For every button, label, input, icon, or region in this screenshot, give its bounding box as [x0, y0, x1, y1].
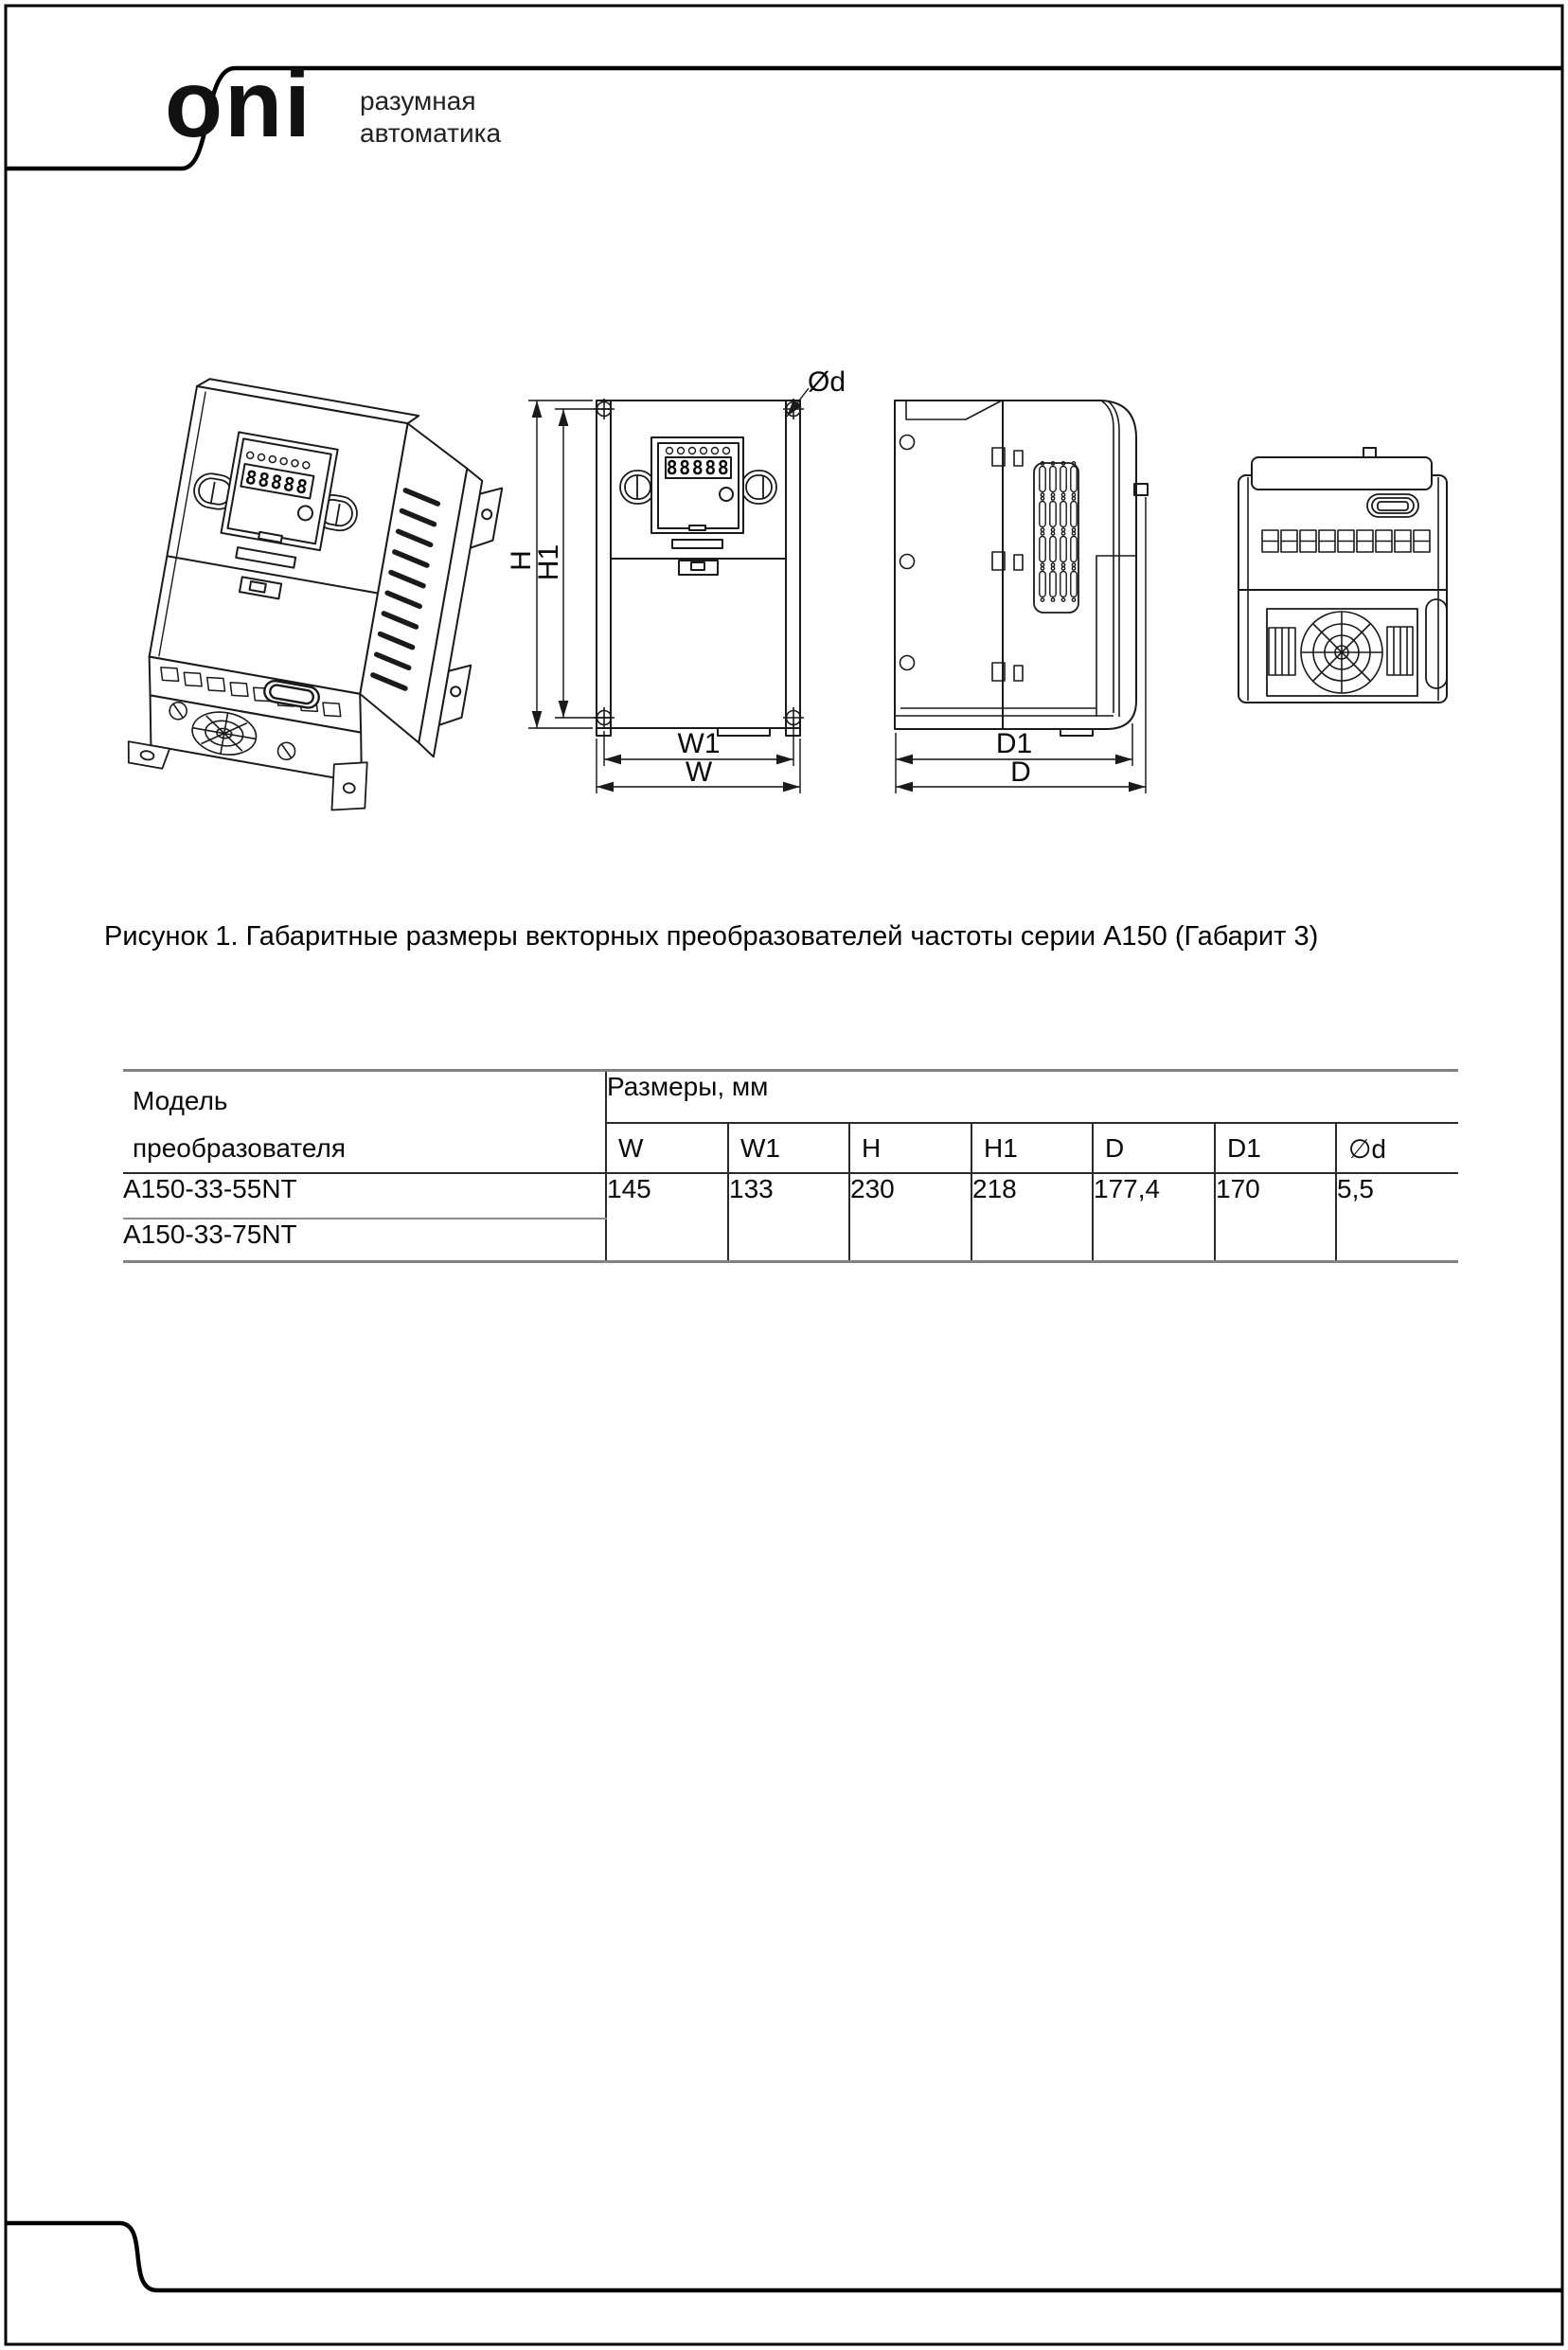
- col-header-d1: D1: [1215, 1123, 1336, 1173]
- table-header-row-1: Модель преобразователя Размеры, мм: [123, 1071, 1458, 1123]
- iso-bottom-ears: [123, 721, 373, 815]
- dimension-labels: H H1 W1 W Ød D1 D: [506, 366, 1032, 788]
- iso-side-ridge: [417, 469, 484, 757]
- col-header-w1: W1: [728, 1123, 849, 1173]
- dim-value-cell: 145: [606, 1173, 728, 1261]
- dim-label-d1: D1: [996, 728, 1032, 759]
- iso-handles: [191, 471, 360, 533]
- fan-icon: [1301, 612, 1382, 693]
- bottom-view: [1238, 448, 1447, 703]
- front-keypad-button: [720, 488, 733, 501]
- brand-tagline-line1: разумная: [360, 85, 501, 117]
- dim-value-cell: 230: [849, 1173, 971, 1261]
- iso-mounting-ears: [439, 485, 502, 729]
- model-cell: A150-33-55NT: [123, 1173, 606, 1219]
- iso-bottom-face: [142, 695, 370, 782]
- col-header-d: D: [1093, 1123, 1215, 1173]
- col-header-h: H: [849, 1123, 971, 1173]
- dim-label-od: Ød: [808, 366, 846, 398]
- bottom-top-bar: [1252, 457, 1432, 490]
- mounting-hole-icon: [594, 707, 615, 728]
- front-keypad-panel: 88888: [651, 437, 743, 533]
- front-handles: [620, 471, 776, 504]
- dim-value-cell: 177,4: [1093, 1173, 1215, 1261]
- iso-top-face: [197, 377, 419, 425]
- dim-value-cell: 170: [1215, 1173, 1336, 1261]
- mounting-hole-icon: [594, 399, 615, 419]
- bottom-grilles: [1269, 627, 1413, 675]
- mounting-hole-icon: [783, 399, 804, 419]
- iso-front-face: [150, 386, 408, 694]
- dimensions-table: Модель преобразователя Размеры, мм W W1 …: [123, 1069, 1458, 1263]
- iso-side-face: [353, 423, 472, 742]
- iso-screws: [165, 701, 300, 760]
- footer-curve: [6, 2223, 1562, 2290]
- dimensions-group-header: Размеры, мм: [606, 1071, 1458, 1123]
- col-header-od: ∅d: [1336, 1123, 1458, 1173]
- iso-keypad-display: 88888: [243, 466, 311, 499]
- dim-value-cell: 5,5: [1336, 1173, 1458, 1261]
- model-column-header: Модель преобразователя: [123, 1071, 606, 1174]
- iso-oval-slot: [263, 679, 321, 709]
- dim-label-w: W: [686, 757, 713, 788]
- iso-fan: [188, 707, 259, 759]
- col-header-h1: H1: [971, 1123, 1093, 1173]
- iso-bottom-slots: [157, 666, 344, 719]
- dim-label-h: H: [506, 550, 537, 571]
- table-row: A150-33-55NT 145 133 230 218 177,4 170 5…: [123, 1173, 1458, 1219]
- brand-tagline-line2: автоматика: [360, 117, 501, 150]
- dim-label-h1: H1: [533, 544, 564, 580]
- mounting-hole-icon: [783, 707, 804, 728]
- isometric-view: 88888: [123, 376, 512, 829]
- side-vent-grid: [1034, 462, 1078, 613]
- bottom-oval-slot: [1367, 494, 1418, 517]
- figure-caption: Рисунок 1. Габаритные размеры векторных …: [104, 921, 1318, 952]
- dim-value-cell: 133: [728, 1173, 849, 1261]
- iso-vent-band: [143, 657, 367, 733]
- dimension-lines: [528, 388, 1146, 793]
- dim-label-d: D: [1010, 757, 1031, 788]
- datasheet-page: { "brand": { "logo": "oni", "tagline_lin…: [0, 0, 1568, 2350]
- brand-logo: oni: [165, 57, 312, 151]
- iso-keypad-panel: 88888: [222, 432, 338, 550]
- front-view: 88888: [594, 399, 804, 736]
- side-mounting-hook: [1134, 484, 1148, 495]
- dim-value-cell: 218: [971, 1173, 1093, 1261]
- side-view: [895, 401, 1148, 736]
- brand-tagline: разумная автоматика: [360, 85, 501, 150]
- iso-keypad-button: [297, 505, 313, 521]
- model-cell: A150-33-75NT: [123, 1219, 606, 1261]
- iso-side-vents: [371, 490, 438, 688]
- terminal-blocks: [1262, 530, 1430, 552]
- dim-label-w1: W1: [678, 728, 721, 759]
- col-header-w: W: [606, 1123, 728, 1173]
- front-keypad-display: 88888: [667, 456, 731, 479]
